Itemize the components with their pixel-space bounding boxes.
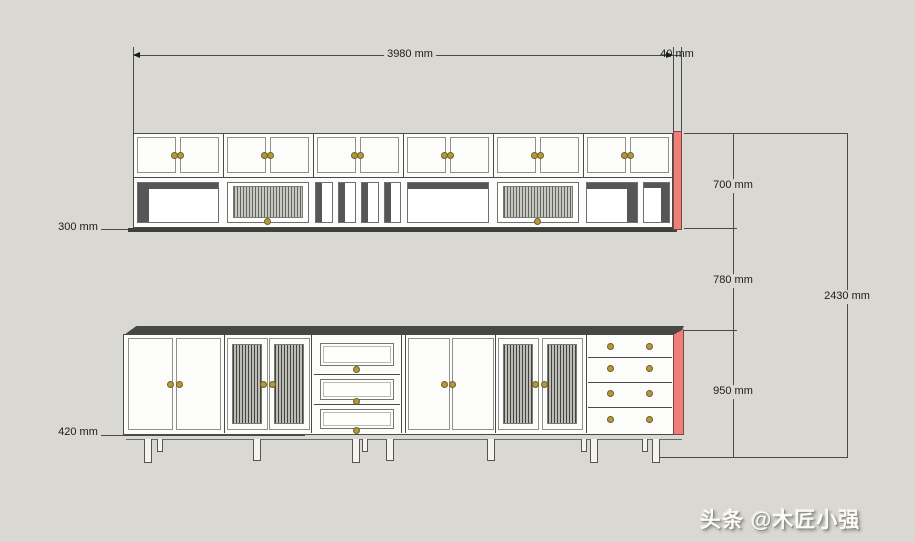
drawer-knob [647, 366, 652, 371]
dim-label-total-width: 3980 mm [384, 48, 436, 62]
cabinet-leg [581, 439, 587, 452]
upper-door [630, 137, 669, 173]
drawer-divider [314, 374, 400, 375]
watermark: 头条 @木匠小强 [700, 504, 860, 534]
upper-door [227, 137, 266, 173]
slatted-grille [232, 344, 262, 424]
lower-section-divider [311, 335, 312, 433]
slatted-grille [503, 186, 573, 218]
niche-shadow-top [138, 183, 218, 189]
upper-door [360, 137, 399, 173]
door-knob [177, 382, 182, 387]
cabinet-leg [642, 439, 648, 452]
upper-door [497, 137, 536, 173]
door-knob [442, 153, 447, 158]
upper-section-divider [583, 134, 584, 177]
door-knob [178, 153, 183, 158]
cabinet-elevation-canvas: 3980 mm 40 mm 300 mm 420 mm [0, 0, 915, 542]
upper-row-divider [134, 177, 672, 178]
upper-section-divider [403, 134, 404, 177]
door-knob [172, 153, 177, 158]
lower-door [176, 338, 221, 430]
drawer-divider [588, 357, 672, 358]
door-knob [628, 153, 633, 158]
dim-arrow-left-icon [133, 52, 140, 58]
drawer-divider [588, 382, 672, 383]
module-gap-line [405, 335, 406, 433]
upper-red-side-panel [673, 131, 682, 230]
slot-shadow [316, 183, 322, 222]
upper-door [450, 137, 489, 173]
drawer-knob [647, 344, 652, 349]
upper-door [587, 137, 626, 173]
door-knob [358, 153, 363, 158]
tick-upper-bottom [684, 228, 737, 229]
tick-lower-top [684, 330, 737, 331]
slatted-grille [233, 186, 303, 218]
drawer-knob [647, 417, 652, 422]
door-knob [450, 382, 455, 387]
dim-label-total-height: 2430 mm [821, 290, 873, 304]
slot-shadow [385, 183, 391, 222]
door-knob [442, 382, 447, 387]
upper-door [180, 137, 219, 173]
lower-door [128, 338, 173, 430]
door-knob [532, 153, 537, 158]
tick-top [684, 133, 848, 134]
drawer-knob [354, 367, 359, 372]
lower-section-divider [495, 335, 496, 433]
door-knob [261, 382, 266, 387]
upper-section-divider [493, 134, 494, 177]
cabinet-leg [253, 439, 261, 461]
upper-door [540, 137, 579, 173]
door-knob [265, 219, 270, 224]
niche-shadow-right [627, 183, 637, 222]
upper-door [137, 137, 176, 173]
door-knob [622, 153, 627, 158]
drawer-knob [354, 428, 359, 433]
drawer-knob [608, 417, 613, 422]
door-knob [352, 153, 357, 158]
upper-door [407, 137, 446, 173]
door-knob [262, 153, 267, 158]
drawer-knob [608, 391, 613, 396]
niche-shadow-left [138, 183, 149, 222]
cabinet-leg [487, 439, 495, 461]
dim-label-upper-depth: 300 mm [58, 221, 98, 235]
upper-section-divider [223, 134, 224, 177]
door-knob [270, 382, 275, 387]
dim-label-side-panel: 40 mm [660, 48, 694, 62]
drawer-knob [608, 344, 613, 349]
drawer-divider [588, 407, 672, 408]
door-knob [168, 382, 173, 387]
dim-label-lower-height: 950 mm [710, 385, 756, 399]
lower-section-divider [586, 335, 587, 433]
drawer-divider [314, 404, 400, 405]
drawer-front-panel [320, 343, 394, 366]
upper-cabinet-bottom-shadow [128, 228, 677, 232]
door-knob [448, 153, 453, 158]
slatted-grille [547, 344, 577, 424]
door-knob [268, 153, 273, 158]
drawer-knob [608, 366, 613, 371]
tick-bottom [660, 457, 848, 458]
lower-door [452, 338, 494, 430]
door-knob [542, 382, 547, 387]
drawer-front-panel [320, 409, 394, 429]
dim-label-middle-gap: 780 mm [710, 274, 756, 288]
leader-lower-depth [101, 435, 305, 436]
dim-ext-left [133, 47, 134, 133]
door-knob [535, 219, 540, 224]
module-gap-line [401, 335, 402, 433]
dim-label-upper-height: 700 mm [710, 179, 756, 193]
cabinet-leg [144, 439, 152, 463]
cabinet-leg [362, 439, 368, 452]
niche-shadow-top [408, 183, 488, 189]
upper-door [317, 137, 356, 173]
lower-section-divider [224, 335, 225, 433]
cabinet-leg [652, 439, 660, 463]
upper-door [270, 137, 309, 173]
slot-shadow [339, 183, 345, 222]
drawer-front-panel [320, 379, 394, 400]
cabinet-leg [590, 439, 598, 463]
drawer-knob [647, 391, 652, 396]
niche-shadow-right [661, 183, 669, 222]
slatted-grille [274, 344, 304, 424]
cabinet-leg [352, 439, 360, 463]
base-rail-line [126, 439, 682, 440]
lower-red-side-panel [673, 329, 684, 435]
door-knob [533, 382, 538, 387]
slot-shadow [362, 183, 368, 222]
upper-section-divider [313, 134, 314, 177]
door-knob [538, 153, 543, 158]
slatted-grille [503, 344, 533, 424]
drawer-knob [354, 399, 359, 404]
cabinet-leg [157, 439, 163, 452]
cabinet-leg [386, 439, 394, 461]
dim-label-lower-depth: 420 mm [58, 426, 98, 440]
